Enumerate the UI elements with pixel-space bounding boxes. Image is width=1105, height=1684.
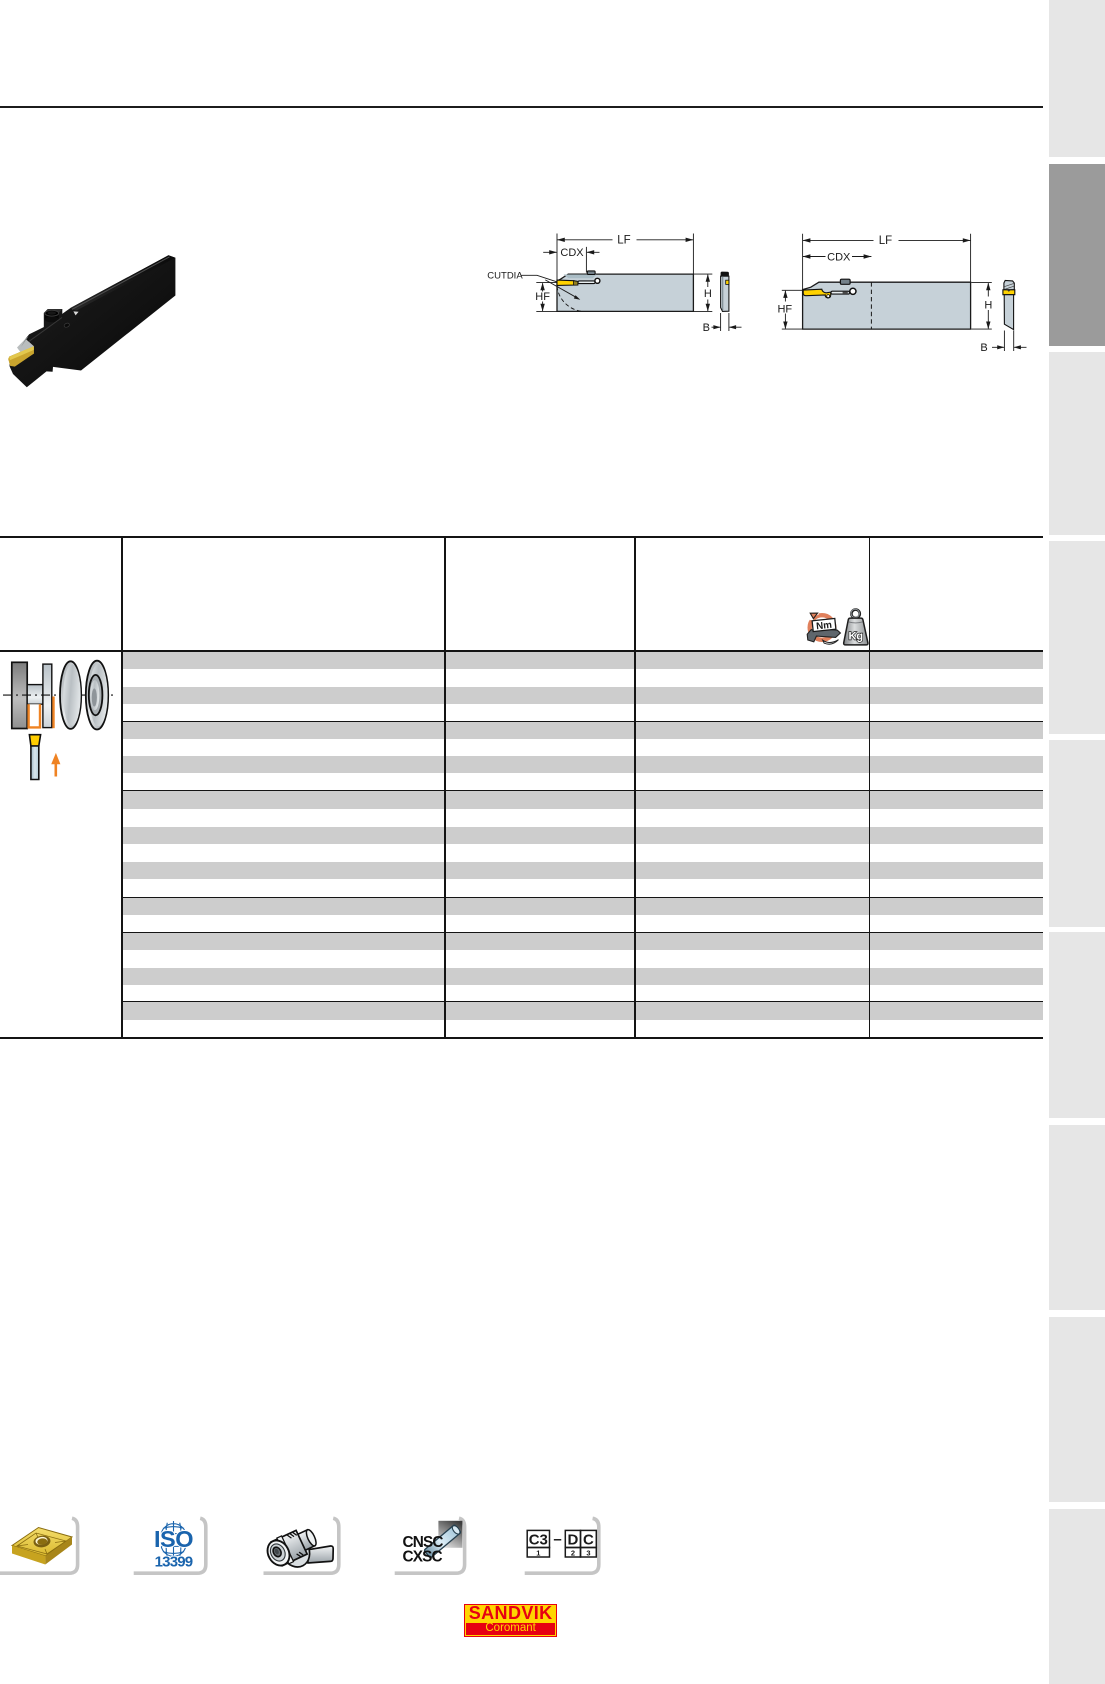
svg-text:Kg: Kg [848,631,863,643]
svg-text:CDX: CDX [827,251,851,263]
svg-text:2: 2 [571,1548,575,1557]
svg-text:CXSC: CXSC [403,1548,443,1565]
svg-text:H: H [704,288,712,300]
svg-text:C3: C3 [529,1532,548,1549]
svg-text:H: H [984,299,992,311]
svg-text:B: B [980,342,987,354]
svg-text:LF: LF [879,235,892,247]
svg-text:D: D [567,1532,578,1549]
svg-text:C: C [583,1532,594,1549]
svg-text:Nm: Nm [816,620,833,633]
svg-text:HF: HF [777,303,792,315]
svg-text:–: – [553,1531,561,1548]
svg-text:LF: LF [617,235,630,247]
svg-text:1: 1 [536,1548,540,1557]
svg-text:CDX: CDX [560,247,584,259]
svg-text:3: 3 [586,1548,590,1557]
svg-text:B: B [703,322,710,334]
svg-text:ISO: ISO [154,1526,193,1552]
svg-text:CUTDIA: CUTDIA [487,271,523,282]
svg-text:HF: HF [535,291,550,303]
svg-text:13399: 13399 [155,1554,193,1571]
